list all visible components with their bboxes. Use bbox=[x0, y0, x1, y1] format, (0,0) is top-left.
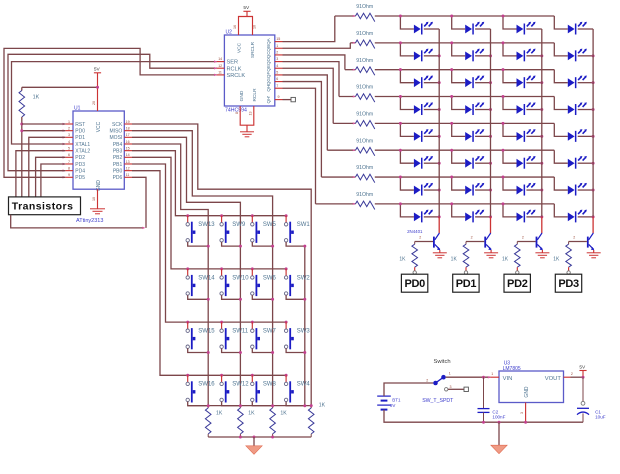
svg-text:PD3: PD3 bbox=[558, 278, 579, 290]
svg-text:1: 1 bbox=[491, 372, 493, 376]
svg-text:1K: 1K bbox=[553, 257, 560, 263]
svg-text:1: 1 bbox=[68, 120, 70, 124]
svg-text:ATtiny2313: ATtiny2313 bbox=[76, 218, 103, 224]
svg-text:PD3: PD3 bbox=[75, 162, 85, 168]
svg-text:SCK: SCK bbox=[112, 122, 123, 128]
svg-text:VCC: VCC bbox=[237, 42, 243, 53]
svg-text:91Ohm: 91Ohm bbox=[356, 85, 373, 91]
svg-text:PD1: PD1 bbox=[456, 278, 477, 290]
svg-text:VCC: VCC bbox=[96, 121, 102, 132]
svg-text:PD0: PD0 bbox=[75, 129, 85, 135]
svg-text:SW3: SW3 bbox=[297, 329, 311, 335]
svg-text:SRCLR: SRCLR bbox=[250, 41, 256, 58]
svg-text:SW13: SW13 bbox=[198, 222, 215, 228]
svg-text:QE: QE bbox=[266, 65, 271, 72]
svg-text:5V: 5V bbox=[243, 5, 250, 11]
svg-text:QF: QF bbox=[266, 72, 271, 79]
svg-text:SW12: SW12 bbox=[232, 382, 249, 388]
svg-text:5V: 5V bbox=[579, 364, 586, 370]
svg-text:5: 5 bbox=[68, 146, 70, 150]
svg-text:SW8: SW8 bbox=[263, 382, 277, 388]
svg-text:3: 3 bbox=[450, 385, 452, 389]
svg-text:U1: U1 bbox=[74, 106, 81, 112]
svg-text:4: 4 bbox=[276, 64, 278, 68]
svg-text:RST: RST bbox=[75, 122, 85, 128]
svg-text:QG: QG bbox=[266, 78, 271, 86]
svg-text:QB: QB bbox=[266, 45, 271, 52]
svg-text:RCLR: RCLR bbox=[252, 88, 258, 102]
svg-text:4: 4 bbox=[68, 140, 70, 144]
svg-text:9V: 9V bbox=[390, 403, 396, 408]
svg-text:100nF: 100nF bbox=[492, 415, 505, 420]
svg-text:VIN: VIN bbox=[503, 376, 513, 382]
svg-text:RCLK: RCLK bbox=[227, 66, 242, 72]
svg-text:19: 19 bbox=[126, 120, 130, 124]
svg-text:QC: QC bbox=[266, 51, 271, 59]
svg-text:QA: QA bbox=[266, 37, 271, 45]
svg-text:SW15: SW15 bbox=[198, 329, 215, 335]
svg-text:GND: GND bbox=[239, 90, 245, 101]
svg-text:2: 2 bbox=[276, 51, 278, 55]
svg-text:1K: 1K bbox=[33, 95, 40, 101]
svg-text:7: 7 bbox=[276, 84, 278, 88]
svg-text:SW9: SW9 bbox=[232, 222, 246, 228]
svg-text:11: 11 bbox=[126, 173, 130, 177]
svg-text:2N4401: 2N4401 bbox=[407, 229, 423, 234]
svg-text:91Ohm: 91Ohm bbox=[356, 112, 373, 118]
svg-text:13: 13 bbox=[249, 112, 253, 116]
svg-text:MISO: MISO bbox=[110, 129, 123, 135]
svg-text:QH: QH bbox=[266, 85, 271, 92]
svg-text:14: 14 bbox=[126, 153, 130, 157]
svg-text:SW6: SW6 bbox=[263, 275, 277, 281]
svg-text:PB2: PB2 bbox=[113, 155, 123, 161]
svg-text:SW11: SW11 bbox=[232, 329, 249, 335]
svg-text:15: 15 bbox=[276, 37, 280, 41]
svg-text:VOUT: VOUT bbox=[545, 376, 562, 382]
svg-text:10: 10 bbox=[92, 197, 96, 201]
svg-text:14: 14 bbox=[218, 57, 222, 61]
svg-text:PD6: PD6 bbox=[113, 175, 123, 181]
svg-text:SW14: SW14 bbox=[198, 275, 215, 281]
svg-text:12: 12 bbox=[126, 166, 130, 170]
svg-text:91Ohm: 91Ohm bbox=[356, 165, 373, 171]
svg-text:SW16: SW16 bbox=[198, 382, 215, 388]
svg-text:1K: 1K bbox=[280, 411, 287, 417]
svg-text:MOSI: MOSI bbox=[110, 135, 123, 141]
svg-text:U2: U2 bbox=[226, 30, 233, 36]
svg-text:1K: 1K bbox=[451, 257, 458, 263]
svg-text:8: 8 bbox=[235, 112, 239, 114]
svg-text:XTAL2: XTAL2 bbox=[75, 149, 90, 155]
svg-text:PD1: PD1 bbox=[75, 135, 85, 141]
svg-text:GND: GND bbox=[96, 180, 102, 192]
svg-text:17: 17 bbox=[126, 133, 130, 137]
svg-text:Transistors: Transistors bbox=[12, 201, 74, 213]
svg-text:20: 20 bbox=[92, 101, 96, 105]
svg-text:PD5: PD5 bbox=[75, 175, 85, 181]
svg-text:2: 2 bbox=[419, 235, 421, 239]
svg-text:PB1: PB1 bbox=[113, 162, 123, 168]
svg-text:2: 2 bbox=[522, 235, 524, 239]
svg-text:91Ohm: 91Ohm bbox=[356, 31, 373, 37]
svg-text:91Ohm: 91Ohm bbox=[356, 4, 373, 10]
svg-text:9: 9 bbox=[278, 95, 280, 99]
svg-text:XTAL1: XTAL1 bbox=[75, 142, 90, 148]
svg-text:1: 1 bbox=[276, 44, 278, 48]
svg-text:91Ohm: 91Ohm bbox=[356, 192, 373, 198]
svg-text:3: 3 bbox=[276, 57, 278, 61]
svg-text:6: 6 bbox=[276, 77, 278, 81]
svg-text:PB3: PB3 bbox=[113, 149, 123, 155]
svg-text:15: 15 bbox=[126, 146, 130, 150]
svg-text:SW2: SW2 bbox=[297, 275, 311, 281]
svg-text:1K: 1K bbox=[399, 257, 406, 263]
svg-text:SW1: SW1 bbox=[297, 222, 311, 228]
svg-text:2: 2 bbox=[571, 372, 573, 376]
svg-text:PD2: PD2 bbox=[75, 155, 85, 161]
svg-text:1K: 1K bbox=[216, 411, 223, 417]
svg-text:9: 9 bbox=[68, 173, 70, 177]
svg-text:8: 8 bbox=[68, 166, 70, 170]
svg-text:PD4: PD4 bbox=[75, 169, 85, 175]
svg-text:13: 13 bbox=[126, 160, 130, 164]
svg-text:91Ohm: 91Ohm bbox=[356, 58, 373, 64]
svg-text:5: 5 bbox=[276, 71, 278, 75]
svg-text:LM7805: LM7805 bbox=[503, 366, 521, 372]
svg-text:QH': QH' bbox=[266, 96, 271, 104]
svg-text:PD0: PD0 bbox=[404, 278, 425, 290]
svg-text:2: 2 bbox=[426, 378, 428, 382]
svg-text:1K: 1K bbox=[248, 411, 255, 417]
svg-text:SW_T_SPDT: SW_T_SPDT bbox=[422, 398, 454, 404]
svg-text:2: 2 bbox=[573, 235, 575, 239]
svg-text:91Ohm: 91Ohm bbox=[356, 138, 373, 144]
svg-text:2: 2 bbox=[68, 126, 70, 130]
svg-text:1: 1 bbox=[449, 372, 451, 376]
svg-text:SRCLK: SRCLK bbox=[227, 73, 246, 79]
svg-text:SER: SER bbox=[227, 60, 239, 66]
svg-text:16: 16 bbox=[126, 140, 130, 144]
svg-text:5V: 5V bbox=[94, 67, 101, 73]
svg-text:12: 12 bbox=[218, 64, 222, 68]
svg-text:6: 6 bbox=[68, 153, 70, 157]
svg-text:10uF: 10uF bbox=[595, 415, 606, 420]
svg-text:SW7: SW7 bbox=[263, 329, 277, 335]
svg-text:10: 10 bbox=[252, 25, 256, 29]
svg-text:SW4: SW4 bbox=[297, 382, 311, 388]
svg-text:7: 7 bbox=[68, 160, 70, 164]
svg-text:3: 3 bbox=[520, 412, 524, 414]
svg-text:3: 3 bbox=[68, 133, 70, 137]
svg-text:2: 2 bbox=[471, 235, 473, 239]
svg-text:GND: GND bbox=[524, 386, 530, 398]
svg-text:QD: QD bbox=[266, 57, 271, 65]
svg-text:1K: 1K bbox=[319, 403, 326, 409]
svg-text:PB4: PB4 bbox=[113, 142, 123, 148]
svg-text:PD2: PD2 bbox=[507, 278, 528, 290]
svg-text:Switch: Switch bbox=[434, 359, 451, 365]
svg-text:SW5: SW5 bbox=[263, 222, 277, 228]
svg-text:PB0: PB0 bbox=[113, 169, 123, 175]
svg-text:1K: 1K bbox=[502, 257, 509, 263]
svg-text:SW10: SW10 bbox=[232, 275, 249, 281]
svg-text:16: 16 bbox=[233, 25, 237, 29]
svg-text:11: 11 bbox=[218, 71, 222, 75]
svg-text:18: 18 bbox=[126, 126, 130, 130]
